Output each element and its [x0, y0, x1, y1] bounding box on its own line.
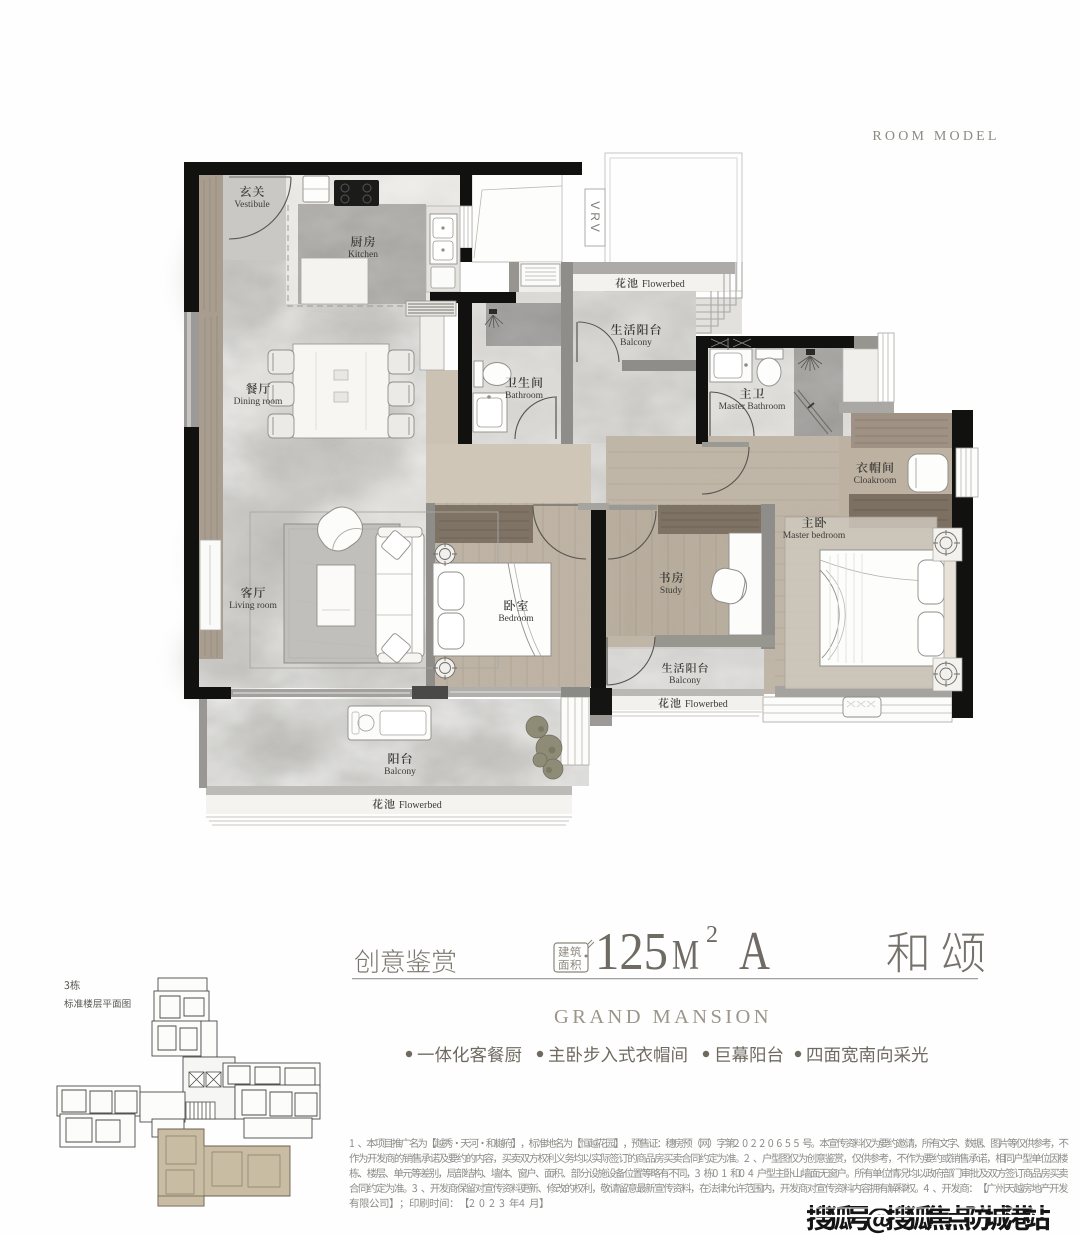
svg-text:M: M	[672, 933, 699, 979]
svg-text:Study: Study	[660, 586, 682, 596]
svg-text:Cloakroom: Cloakroom	[854, 476, 897, 486]
svg-text:Master Bathroom: Master Bathroom	[719, 402, 786, 412]
svg-text:Bathroom: Bathroom	[505, 391, 544, 401]
svg-text:Flowerbed: Flowerbed	[685, 699, 728, 710]
svg-text:A: A	[739, 920, 770, 981]
svg-text:Bedroom: Bedroom	[498, 614, 534, 624]
svg-text:Balcony: Balcony	[669, 676, 701, 686]
svg-text:Balcony: Balcony	[384, 767, 416, 777]
svg-text:ROOM MODEL: ROOM MODEL	[872, 129, 999, 144]
svg-text:125: 125	[595, 923, 668, 981]
svg-text:VRV: VRV	[588, 201, 602, 234]
svg-text:GRAND MANSION: GRAND MANSION	[554, 1006, 772, 1028]
svg-text:Balcony: Balcony	[620, 338, 652, 348]
svg-text:Vestibule: Vestibule	[234, 200, 269, 210]
svg-text:Master bedroom: Master bedroom	[783, 531, 846, 541]
svg-text:2: 2	[706, 922, 718, 948]
svg-text:Dining room: Dining room	[234, 397, 283, 407]
svg-text:Kitchen: Kitchen	[348, 250, 378, 260]
svg-text:Living room: Living room	[229, 601, 277, 611]
svg-text:Flowerbed: Flowerbed	[642, 279, 685, 290]
svg-text:Flowerbed: Flowerbed	[399, 800, 442, 811]
